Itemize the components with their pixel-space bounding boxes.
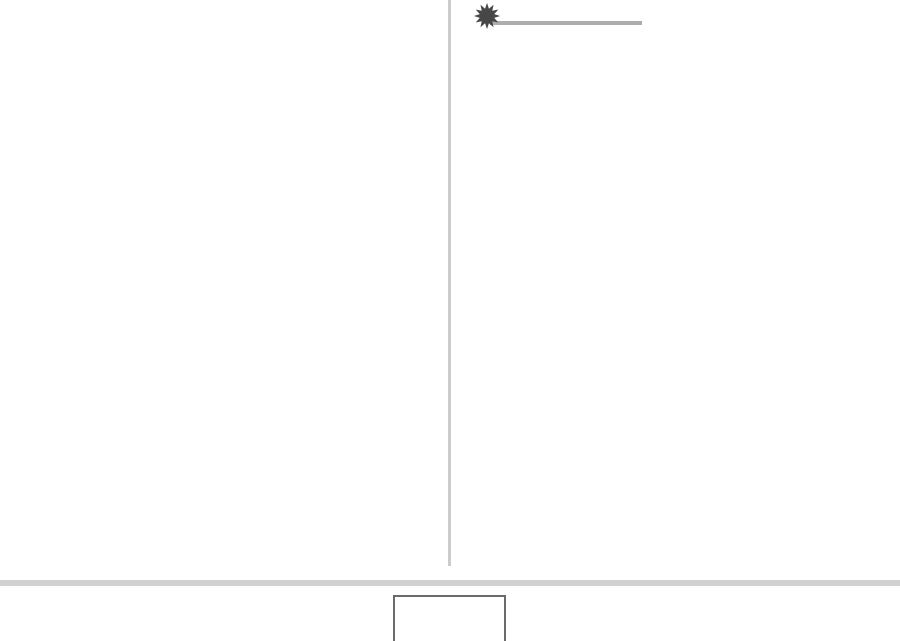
marker-horizontal-rule: [490, 21, 642, 25]
footer-divider-bar: [0, 580, 900, 586]
footer-box: [393, 595, 506, 641]
right-column-panel: [451, 0, 900, 566]
page-canvas: [0, 0, 900, 641]
starburst-icon: [473, 2, 501, 30]
left-column-panel: [0, 0, 448, 566]
